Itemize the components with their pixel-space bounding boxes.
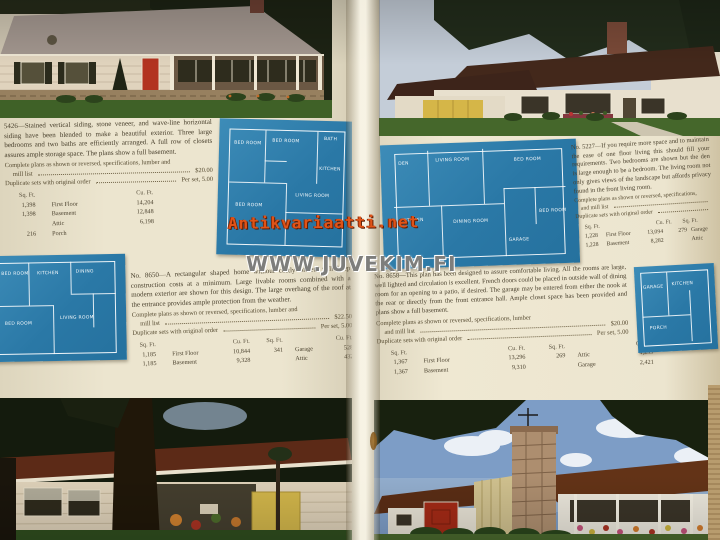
foxing-spot [370, 432, 377, 450]
col-header-sqft2: Sq. Ft. [260, 336, 283, 346]
price-value: Per set, 5.00 [181, 176, 213, 184]
col-header-cuft2: Cu. Ft. [327, 333, 353, 344]
room-label: BED ROOM [272, 139, 299, 145]
cell-label: Basement [606, 238, 641, 249]
cell-sqft2 [260, 355, 283, 365]
cell-cuft [114, 227, 154, 237]
room-label: KITCHEN [37, 271, 59, 276]
col-header-blank [172, 338, 220, 349]
listing-5227-description: No. 5227—If you require more space and t… [571, 136, 712, 197]
col-header-blank [295, 334, 327, 345]
floor-plan-5227: DEN LIVING ROOM BED ROOM KITCHEN DINING … [380, 139, 580, 270]
porch-windows [570, 500, 692, 522]
price-value: $22.50 [334, 313, 352, 321]
cell-label: Basement [172, 357, 220, 368]
floor-plan-5426: BED ROOM BED ROOM BATH KITCHEN LIVING RO… [216, 118, 356, 258]
spec-table-8650: Sq. Ft. Cu. Ft. Sq. Ft. Cu. Ft. 1,185 Fi… [133, 333, 354, 369]
listing-8650-copy: No. 8650—A rectangular shaped home witho… [130, 264, 353, 370]
room-label: DEN [398, 162, 409, 167]
spec-table-5227: Sq. Ft. Cu. Ft. Sq. Ft. 1,228 First Floo… [576, 216, 715, 251]
dot-leader [223, 327, 316, 331]
cell-sqft: 1,367 [378, 367, 408, 378]
col-header-sqft2: Sq. Ft. [535, 342, 565, 353]
col-header-blank [51, 189, 113, 200]
front-door [142, 58, 159, 92]
sapling-leaves [268, 447, 292, 461]
cell-cuft: 9,310 [486, 363, 526, 374]
cell-label: Basement [424, 364, 486, 376]
cell-label2: Garage [578, 359, 620, 370]
dot-leader [38, 171, 191, 175]
lawn [0, 100, 332, 118]
shadow-edge [0, 458, 16, 540]
room-label: BATH [324, 137, 337, 142]
cell-cuft: 8,282 [640, 237, 664, 247]
col-header-sqft: Sq. Ft. [576, 223, 601, 233]
price-value: $20.00 [611, 319, 629, 327]
col-header-sqft: Sq. Ft. [377, 348, 407, 359]
chimney [250, 0, 264, 13]
price-text: and mill list [581, 204, 609, 212]
cell-cuft: 9,328 [220, 356, 251, 367]
cell-sqft: 1,185 [133, 359, 156, 369]
price-text: Duplicate sets with original order [5, 178, 91, 187]
sapling [276, 456, 280, 540]
floor-plan-8658: GARAGE KITCHEN PORCH [634, 263, 718, 353]
price-text: mill list [140, 320, 160, 328]
lawn [374, 534, 720, 540]
cell-cuft2: 2,421 [620, 358, 654, 369]
room-label: KITCHEN [319, 167, 341, 173]
price-text: mill list [13, 171, 33, 178]
price-value: Per set, 5.00 [321, 322, 353, 330]
room-label: BED ROOM [539, 208, 566, 214]
room-label: GARAGE [509, 237, 530, 243]
window-with-shutters [14, 62, 52, 84]
porch-windows [178, 60, 316, 82]
book-page-edges [708, 385, 720, 540]
col-header-sqft2: Sq. Ft. [678, 217, 699, 227]
price-text: Duplicate sets with original order [132, 327, 218, 337]
house-photo-5426 [0, 0, 332, 118]
dot-leader [658, 209, 708, 213]
dot-leader [96, 181, 177, 184]
col-header-sqft: Sq. Ft. [5, 191, 35, 201]
watermark-antikvariaatti: Antikvariaatti.net [228, 212, 420, 233]
listing-5426-description: 5426—Stained vertical siding, stone vene… [4, 118, 213, 160]
cell-label2: Attic [691, 234, 715, 244]
price-value: Per set, 5.00 [597, 328, 629, 336]
col-header-cuft: Cu. Ft. [113, 188, 153, 198]
cell-cuft2: 432 [327, 352, 353, 363]
small-window [396, 514, 412, 526]
listing-5227-copy: No. 5227—If you require more space and t… [571, 136, 715, 251]
plan-outline [640, 269, 713, 346]
spec-table-5426: Sq. Ft. Cu. Ft. 1,398 First Floor 14,204… [5, 187, 214, 239]
gable-vent [47, 35, 57, 45]
col-header-cuft: Cu. Ft. [646, 219, 673, 230]
watermark-juvekim: WWW.JUVEKIM.FI [246, 252, 457, 276]
room-label: BED ROOM [235, 203, 262, 209]
room-label: BED ROOM [234, 140, 261, 146]
room-label: BED ROOM [514, 157, 541, 163]
col-header-cuft: Cu. Ft. [485, 343, 525, 354]
cell-sqft2 [669, 236, 687, 246]
room-label: GARAGE [643, 285, 664, 291]
sky-patch [163, 402, 247, 430]
price-value: $20.00 [195, 167, 213, 174]
room-label: BED ROOM [1, 271, 28, 276]
chimney [607, 22, 627, 54]
cell-label2: Attic [295, 353, 327, 364]
price-text: and mill list [384, 328, 415, 336]
cell-sqft: 216 [6, 229, 36, 239]
cell-label: Porch [52, 227, 114, 238]
book-photo: 5426—Stained vertical siding, stone vene… [0, 0, 720, 540]
col-header-sqft: Sq. Ft. [133, 340, 156, 350]
floor-plan-8650: BED ROOM KITCHEN DINING BED ROOM LIVING … [0, 254, 127, 362]
house-photo-5227 [379, 0, 720, 136]
room-label: LIVING ROOM [60, 316, 94, 322]
dot-leader [467, 334, 592, 340]
price-text: Duplicate sets with original order [377, 335, 463, 345]
listing-5426-copy: 5426—Stained vertical siding, stone vene… [4, 118, 214, 239]
room-label: BED ROOM [5, 321, 32, 326]
col-header-cuft: Cu. Ft. [219, 337, 250, 348]
room-label: PORCH [650, 326, 667, 332]
lawn [0, 530, 352, 540]
stone-chimney [512, 432, 556, 538]
col-header-blank [577, 340, 619, 351]
cell-sqft2 [536, 361, 566, 372]
window-jalousie [24, 488, 100, 516]
window-with-shutters [58, 62, 96, 84]
house-photo-8650 [0, 398, 352, 540]
cell-sqft: 1,228 [577, 241, 599, 251]
room-label: LIVING ROOM [295, 194, 329, 200]
house-photo-8658 [374, 400, 720, 540]
room-label: DINING [76, 269, 94, 274]
